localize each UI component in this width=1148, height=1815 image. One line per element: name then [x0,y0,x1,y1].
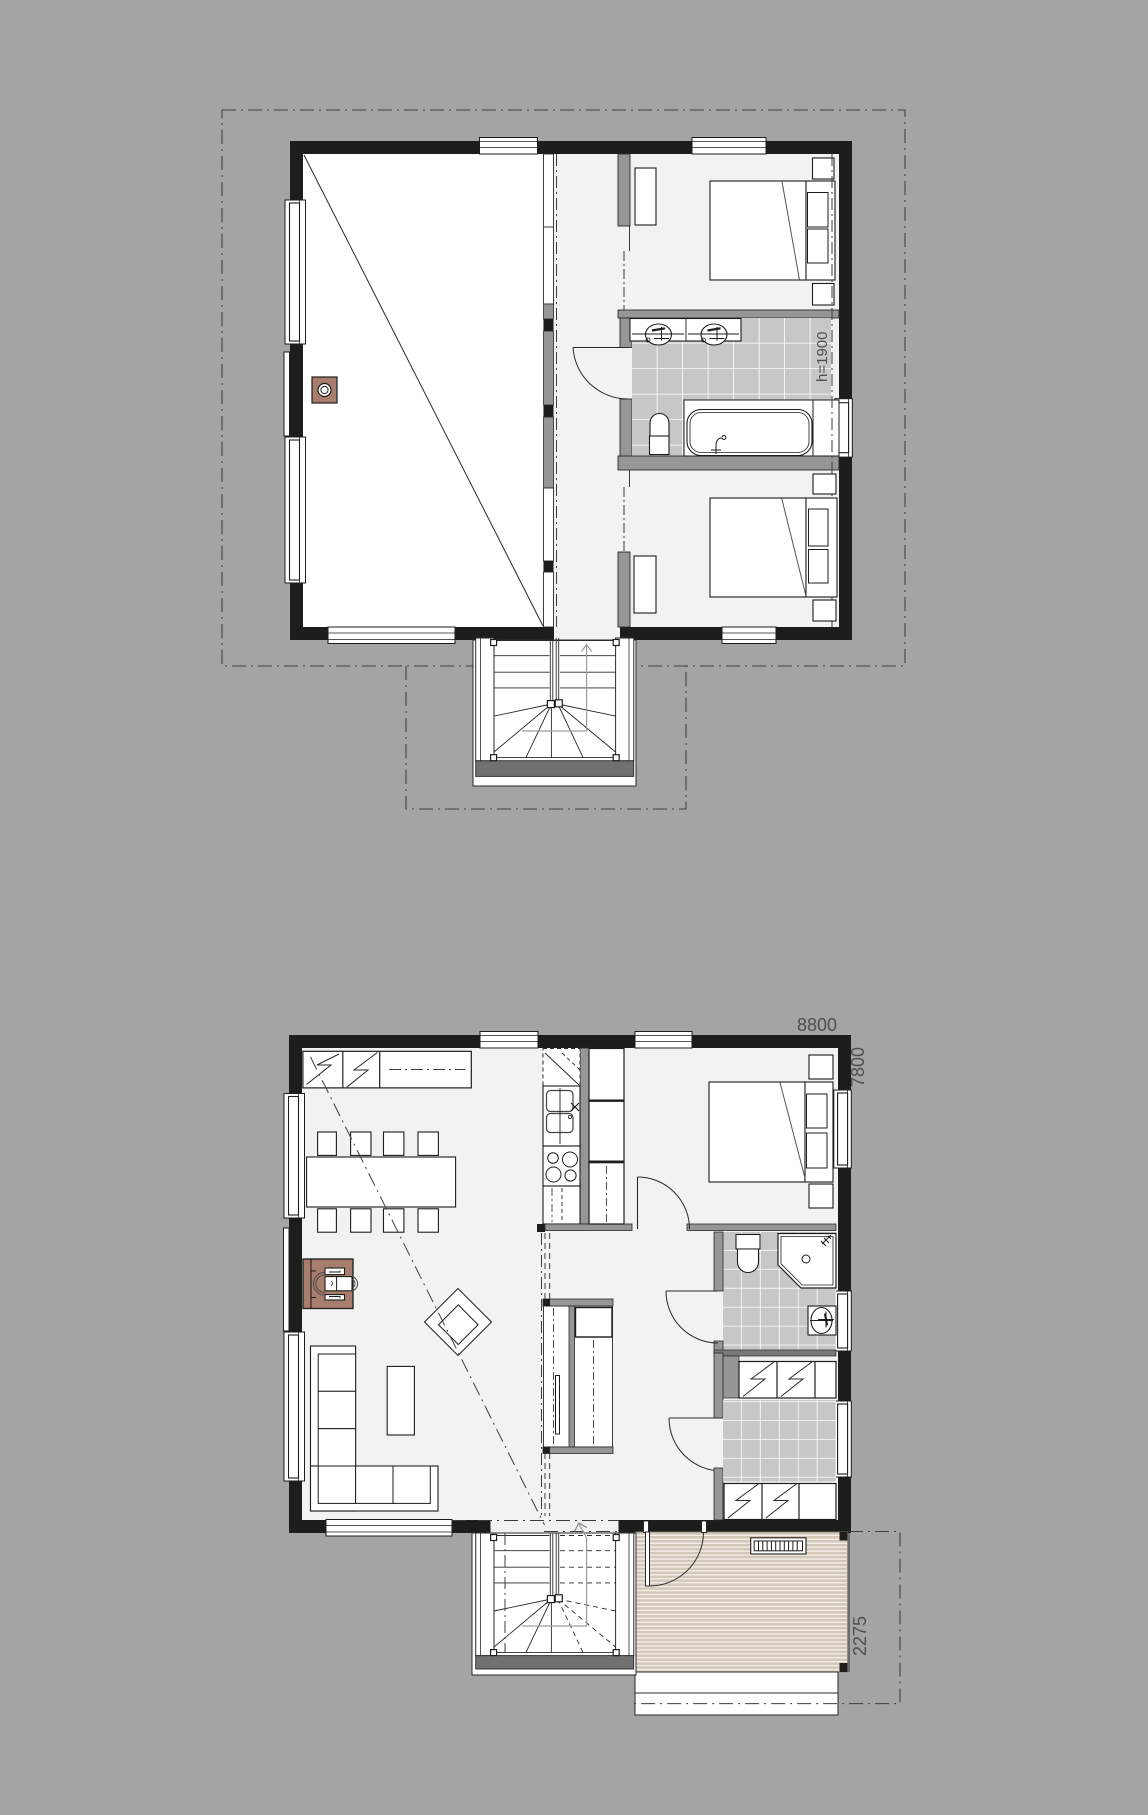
svg-text:2275: 2275 [850,1616,870,1656]
svg-text:8800: 8800 [797,1015,837,1035]
svg-text:7800: 7800 [848,1047,868,1087]
svg-text:h=1900: h=1900 [814,332,831,382]
